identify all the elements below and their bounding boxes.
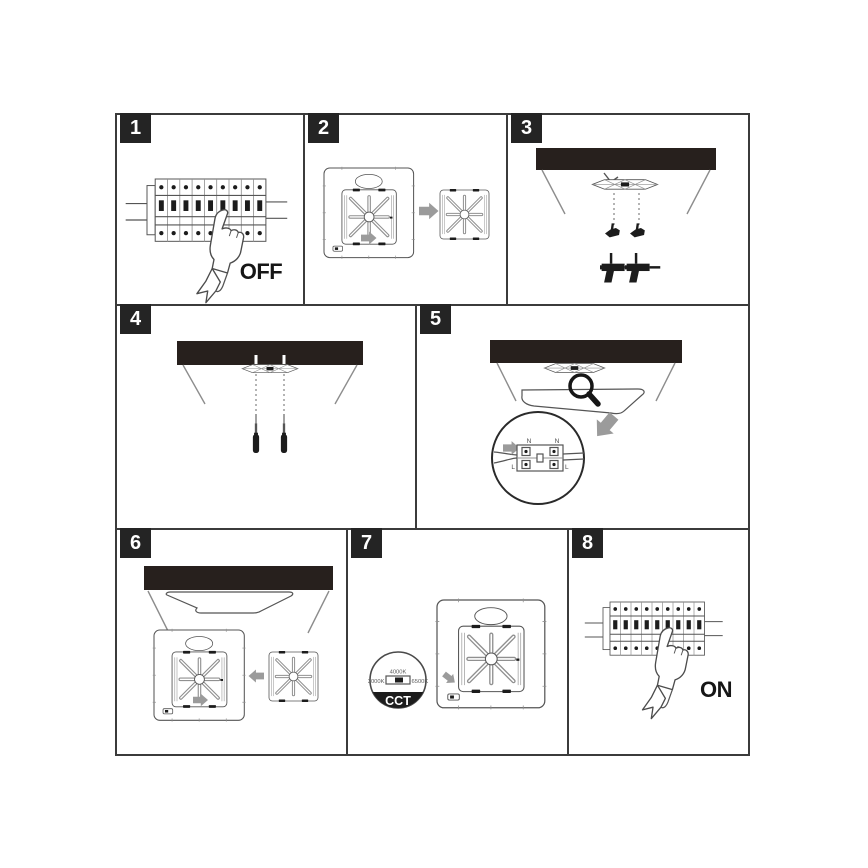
step-number-badge: 3	[511, 113, 542, 143]
wiring-detail-circle: N N L L	[492, 412, 584, 504]
panel-back-illustration	[153, 629, 246, 722]
remove-bracket-arrow-icon	[419, 203, 439, 219]
step-number-badge: 7	[351, 528, 382, 558]
ceiling-illustration	[144, 566, 333, 590]
bracket-on-ceiling-illustration	[242, 365, 298, 373]
screwdriver-icon	[253, 414, 259, 453]
cct-option-4000k: 4000K	[390, 670, 407, 676]
neutral-label-left: N	[527, 438, 532, 445]
alignment-dashed-lines	[256, 374, 284, 412]
screw-pin	[255, 355, 258, 364]
step-3-illustration	[508, 115, 748, 304]
live-label-left: L	[511, 464, 515, 471]
step-4-panel: 4	[115, 304, 417, 530]
power-on-label: ON	[700, 677, 732, 702]
cct-option-6500k: 6500K	[412, 679, 429, 685]
step-number-badge: 8	[572, 528, 603, 558]
cct-dial-callout: CCT 4000K 3000K 6500K	[368, 652, 429, 708]
step-8-illustration: ON	[569, 530, 748, 754]
wall-anchor-icon	[630, 223, 645, 237]
step-4-illustration	[117, 306, 415, 528]
step-number-badge: 1	[120, 113, 151, 143]
step-number: 7	[361, 532, 372, 555]
wall-anchor-icon	[605, 223, 620, 237]
mounting-bracket-illustration	[440, 189, 489, 240]
panel-back-illustration	[323, 167, 415, 259]
step-5-panel: 5 N N L L	[415, 304, 750, 530]
step-6-panel: 6	[115, 528, 348, 756]
step-number: 5	[430, 308, 441, 331]
cct-option-3000k: 3000K	[368, 679, 385, 685]
circuit-breaker-illustration	[126, 179, 288, 241]
step-number: 4	[130, 308, 141, 331]
step-number-badge: 2	[308, 113, 339, 143]
neutral-label-right: N	[555, 438, 560, 445]
step-number: 1	[130, 117, 141, 140]
step-7-panel: 7 CCT 4000K 3000K 6500K	[346, 528, 569, 756]
step-8-panel: 8 ON	[567, 528, 750, 756]
live-label-right: L	[565, 464, 569, 471]
power-off-label: OFF	[240, 259, 283, 284]
mounting-bracket-illustration	[269, 651, 318, 702]
step-number-badge: 4	[120, 304, 151, 334]
step-6-illustration	[117, 530, 346, 754]
ceiling-illustration	[490, 340, 682, 363]
step-number-badge: 6	[120, 528, 151, 558]
ceiling-illustration	[177, 341, 363, 365]
step-number-badge: 5	[420, 304, 451, 334]
alignment-dashed-lines	[614, 193, 639, 227]
step-number: 8	[582, 532, 593, 555]
step-1-panel: 1 OFF	[115, 113, 305, 306]
circuit-breaker-illustration	[585, 602, 723, 655]
bracket-on-ceiling-illustration	[544, 364, 604, 373]
step-2-illustration	[305, 115, 506, 304]
installation-instruction-sheet: 1 OFF 2 3	[0, 0, 868, 868]
drill-icon	[625, 253, 660, 283]
terminal-block-illustration	[517, 445, 563, 471]
tilted-panel-illustration	[522, 389, 644, 414]
ceiling-illustration	[536, 148, 716, 170]
panel-back-illustration	[435, 598, 546, 709]
cct-label: CCT	[385, 694, 411, 708]
attach-bracket-arrow-icon	[249, 669, 265, 682]
screwdriver-icon	[281, 414, 287, 453]
perspective-lines	[542, 170, 710, 214]
mounted-panel-illustration	[166, 592, 293, 613]
step-number: 6	[130, 532, 141, 555]
step-3-panel: 3	[506, 113, 750, 306]
cct-switch	[386, 676, 410, 684]
step-7-illustration: CCT 4000K 3000K 6500K	[348, 530, 567, 754]
step-5-illustration: N N L L	[417, 306, 748, 528]
step-2-panel: 2	[303, 113, 508, 306]
step-1-illustration: OFF	[117, 115, 303, 304]
step-number: 3	[521, 117, 532, 140]
screw-pin	[283, 355, 286, 364]
bracket-on-ceiling-illustration	[592, 180, 657, 190]
step-number: 2	[318, 117, 329, 140]
